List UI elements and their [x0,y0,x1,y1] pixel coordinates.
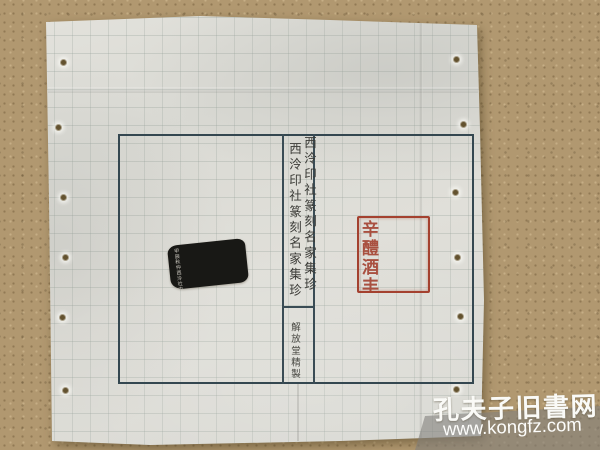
rubbing-glyphs: 甲辰秋仲西泠社中人作邊款記之歲在丙午春日鈍叟刻於孤山之麓並記石上永寶用之 [167,245,188,290]
spine-fold-crease [297,384,299,441]
photo-of-seal-album-cover: 西泠印社篆刻名家集珍 西泠印社篆刻名家集珍 解放堂精製 辛醴酒丰申號琳美眞鏽 甲… [0,0,600,450]
side-inscription-rubbing: 甲辰秋仲西泠社中人作邊款記之歲在丙午春日鈍叟刻於孤山之麓並記石上永寶用之 [167,238,249,290]
red-seal-impression: 辛醴酒丰申號琳美眞鏽 [357,216,430,293]
horizontal-crease [48,87,478,93]
punch-hole [56,125,61,130]
paper-shadow-wrap: 西泠印社篆刻名家集珍 西泠印社篆刻名家集珍 解放堂精製 辛醴酒丰申號琳美眞鏽 甲… [0,0,600,450]
punch-hole [63,255,68,260]
punch-hole [63,388,68,393]
red-seal-glyphs: 辛醴酒丰申號琳美眞鏽 [359,218,378,293]
spine-colophon: 解放堂精製 [287,322,301,381]
punch-hole [61,195,66,200]
punch-hole [61,60,66,65]
paper-sheet: 西泠印社篆刻名家集珍 西泠印社篆刻名家集珍 解放堂精製 辛醴酒丰申號琳美眞鏽 甲… [0,0,600,450]
punch-hole [60,315,65,320]
spine-divider [282,306,315,308]
punch-hole [454,57,459,62]
punch-hole [461,122,466,127]
spine-title-inner: 西泠印社篆刻名家集珍 [285,142,304,299]
spine-line-left [282,134,284,384]
